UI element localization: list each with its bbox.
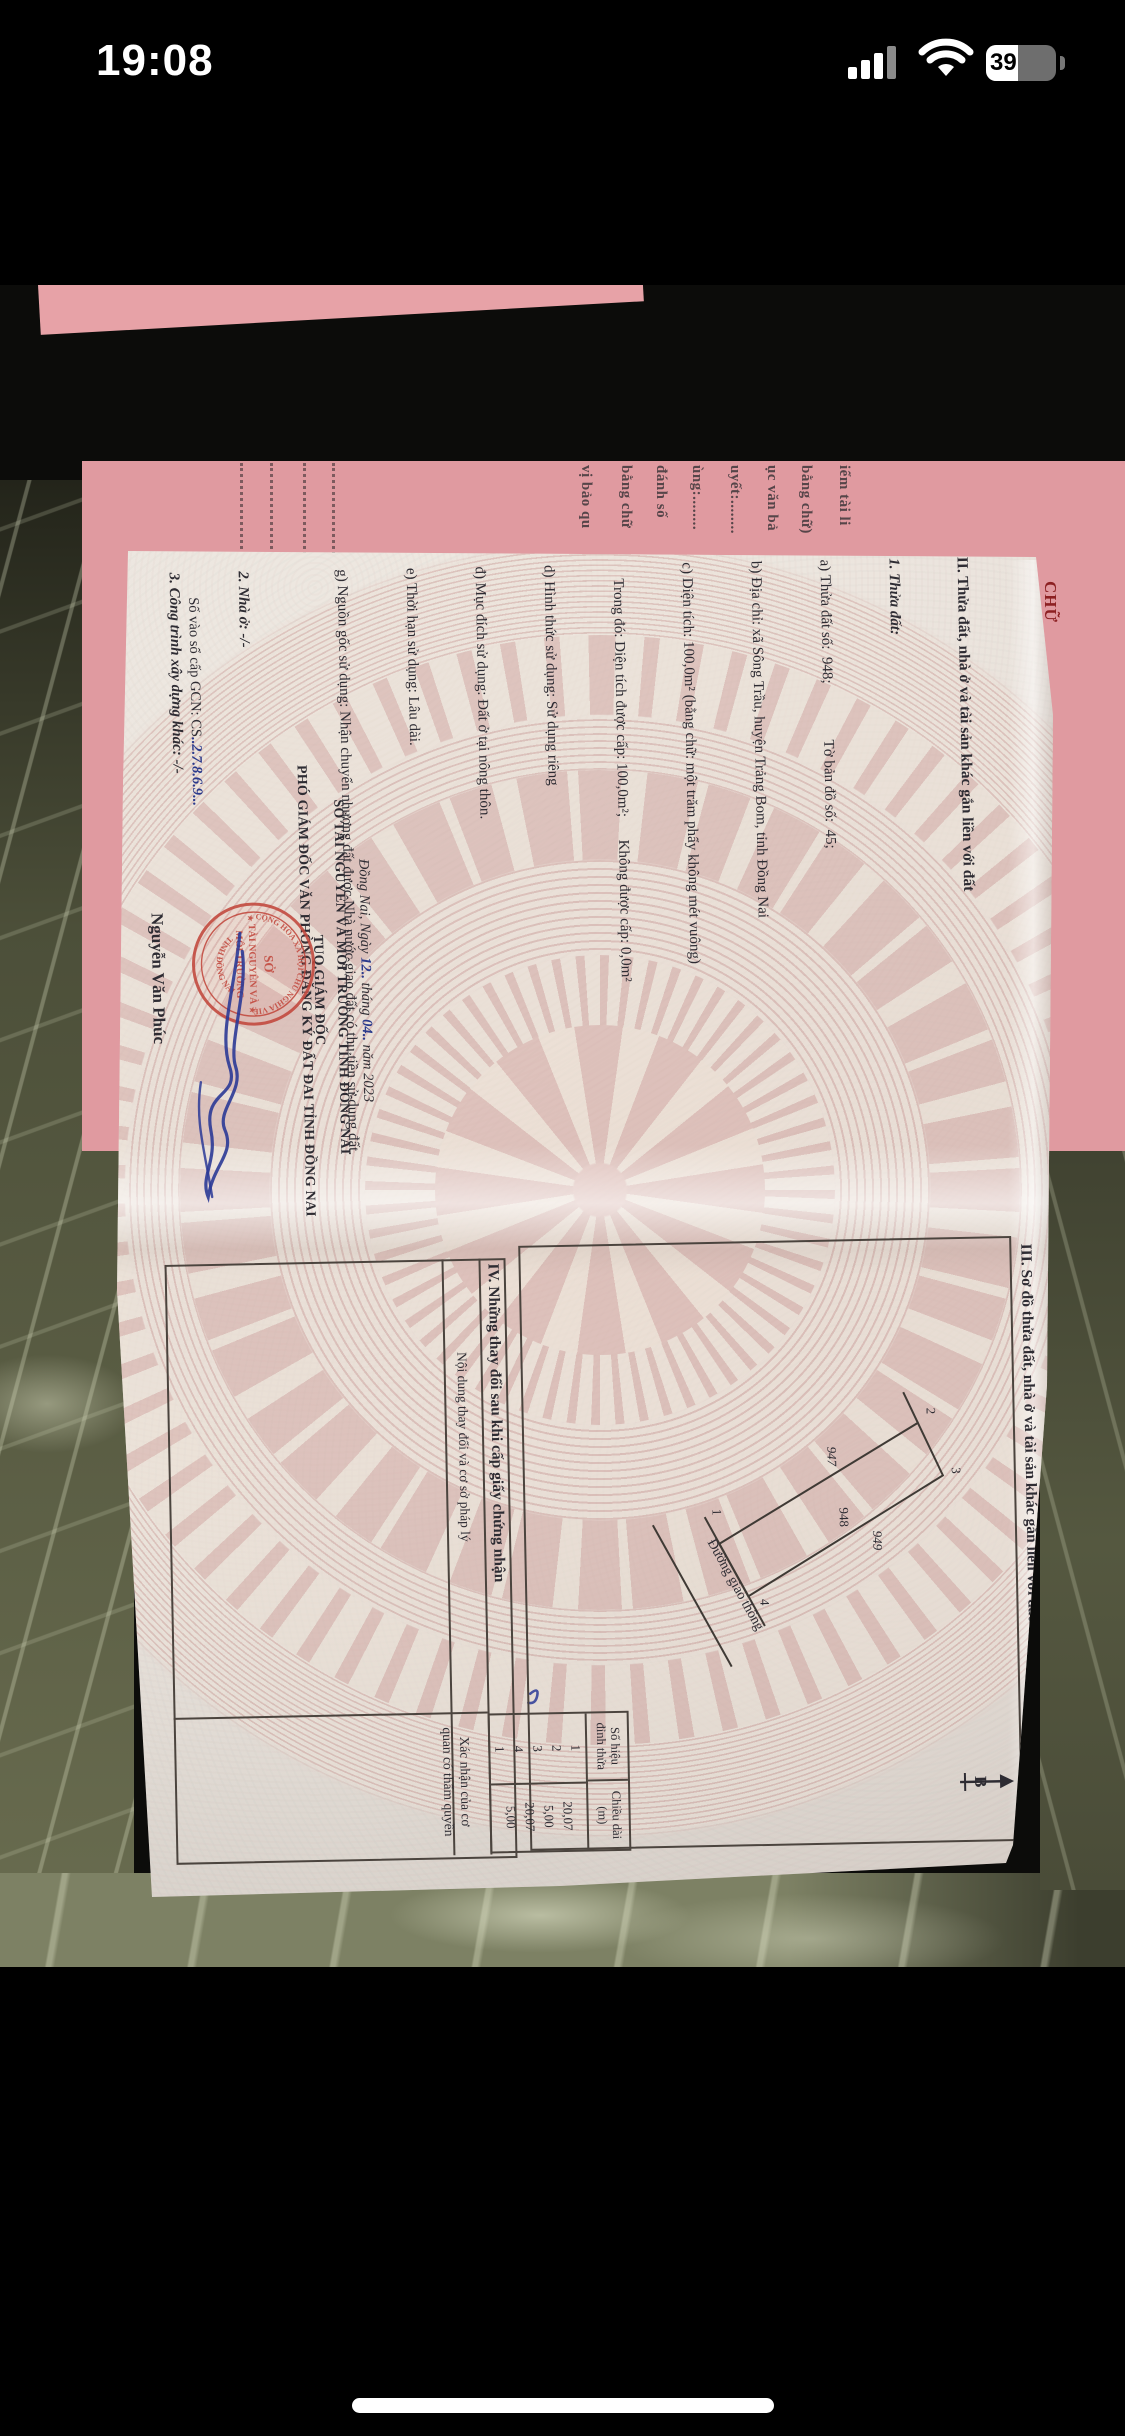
cover-text-fragment: bằng chữ)	[797, 465, 814, 534]
table-col2-header: Chiều dài (m)	[588, 1781, 629, 1850]
marble-table-right	[1040, 1120, 1125, 1890]
section4-col2-header: Xác nhận của cơ quan có thẩm quyền	[439, 1727, 475, 1837]
neighbor-plot-label: 949	[870, 1531, 885, 1551]
battery-nub	[1060, 56, 1065, 70]
photo-view[interactable]: vị bảo qu bằng chữ đánh số ùng:........ …	[0, 285, 1125, 1967]
length-cell: 5,00	[540, 1782, 557, 1850]
cover-text-fragment: ục văn bả	[763, 465, 780, 531]
vertex-cell: 1	[567, 1714, 584, 1782]
battery-icon: 39	[986, 45, 1056, 81]
vertex-label: 2	[924, 1407, 939, 1414]
neighbor-plot-label: 947	[824, 1446, 839, 1466]
wifi-icon	[920, 44, 972, 82]
north-label: B	[971, 1776, 990, 1788]
vertex-cell: 3	[529, 1714, 546, 1782]
cellular-signal-icon	[848, 45, 906, 81]
pink-cover-back-sheet	[38, 285, 644, 335]
table-col1-header: Số hiệu đỉnh thửa	[587, 1713, 628, 1782]
vertex-label: 3	[949, 1467, 964, 1474]
iphone-screen: 19:08 39	[0, 0, 1125, 2436]
status-time: 19:08	[96, 36, 214, 86]
cover-text-fragment: ùng:........	[688, 465, 705, 530]
cover-dotted-line	[240, 463, 243, 555]
cover-text-fragment: iểm tài li	[835, 465, 852, 526]
cover-text-fragment: vị bảo qu	[577, 465, 594, 529]
cover-dotted-line	[303, 463, 306, 555]
cover-dotted-line	[332, 463, 335, 555]
vertex-label: 4	[757, 1599, 772, 1606]
road-label: Đường giao thông	[704, 1537, 767, 1633]
battery-percent: 39	[990, 49, 1017, 77]
length-cell: 20,07	[521, 1783, 538, 1851]
plot-number-label: 948	[837, 1507, 852, 1527]
cover-text-fragment: đánh số	[652, 465, 669, 518]
cover-red-text-fragment: CHỮ	[1040, 581, 1060, 623]
home-indicator[interactable]	[352, 2398, 774, 2413]
cover-dotted-line	[270, 463, 273, 555]
north-arrow-icon: B	[960, 1772, 1014, 1791]
length-cell: 20,07	[559, 1782, 576, 1850]
vertex-cell: 2	[548, 1714, 565, 1782]
vertex-label: 1	[710, 1509, 725, 1516]
cover-text-fragment: uyết:........	[726, 465, 743, 534]
status-icons: 39	[848, 44, 1065, 82]
status-bar: 19:08 39	[0, 0, 1125, 130]
cover-text-fragment: bằng chữ	[617, 465, 634, 528]
